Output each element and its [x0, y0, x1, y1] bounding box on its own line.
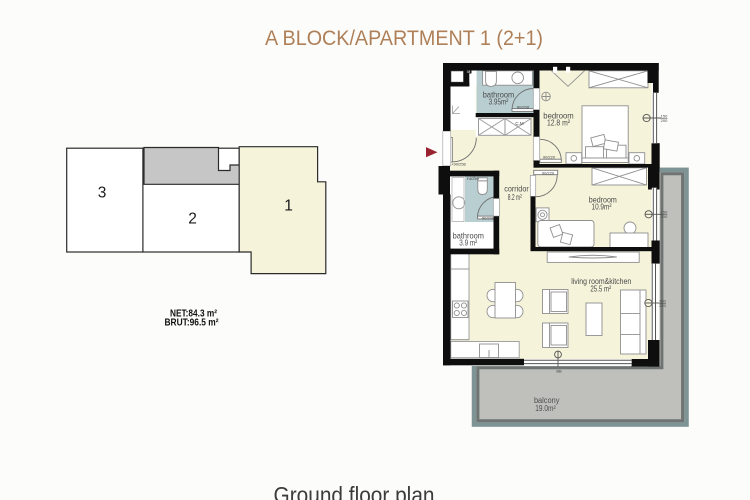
svg-text:12.8 m²: 12.8 m²	[547, 118, 570, 128]
svg-text:BRUT:96.5 m²: BRUT:96.5 m²	[165, 317, 220, 328]
svg-text:1: 1	[284, 198, 293, 215]
svg-text:3: 3	[98, 185, 107, 202]
svg-text:3.95m²: 3.95m²	[489, 97, 509, 107]
svg-text:80/208: 80/208	[517, 104, 530, 109]
svg-text:19.0m²: 19.0m²	[535, 404, 556, 413]
svg-text:A BLOCK/APARTMENT 1 (2+1): A BLOCK/APARTMENT 1 (2+1)	[265, 26, 543, 50]
svg-text:Ground floor plan: Ground floor plan	[274, 482, 435, 500]
svg-text:BB: BB	[556, 369, 562, 374]
svg-text:80/208: 80/208	[482, 215, 495, 220]
svg-text:M: M	[467, 70, 470, 74]
svg-text:niche: niche	[467, 176, 480, 182]
svg-text:2: 2	[188, 211, 197, 228]
svg-text:90/220: 90/220	[542, 170, 555, 175]
svg-text:Ç.M: Ç.M	[515, 121, 524, 126]
svg-text:8.2 m²: 8.2 m²	[508, 192, 522, 202]
svg-text:25.5 m²: 25.5 m²	[590, 284, 611, 294]
svg-text:10.9m²: 10.9m²	[592, 202, 612, 212]
svg-text:+90/258: +90/258	[451, 162, 466, 167]
svg-text:3.9 m²: 3.9 m²	[459, 237, 477, 247]
svg-text:90/220: 90/220	[543, 155, 556, 160]
